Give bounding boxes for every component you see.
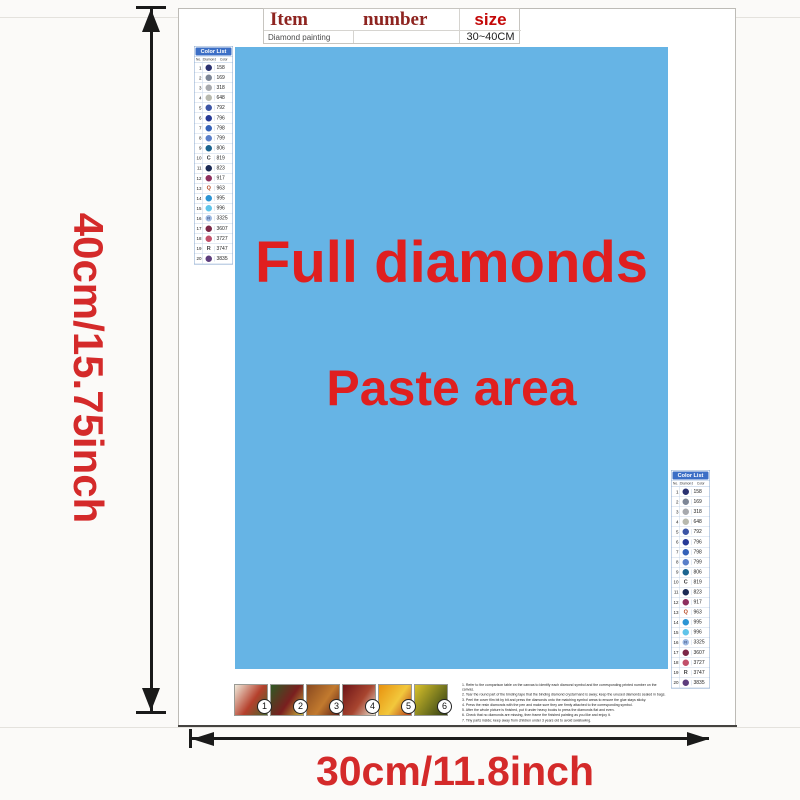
paste-area-title-line2: Paste area (235, 359, 668, 417)
diamond-symbol-dot (683, 659, 690, 666)
diamond-symbol-cell (203, 103, 215, 113)
diamond-symbol-cell (680, 497, 692, 507)
diamond-symbol-cell: C (680, 577, 692, 587)
dmc-color-code: 963 (692, 610, 710, 616)
diamond-symbol-cell (680, 567, 692, 577)
color-list-row-number: 9 (195, 146, 203, 151)
arrow-line (150, 9, 153, 711)
color-list-row: 7798 (672, 547, 710, 557)
color-list-row: 16R3325 (672, 638, 710, 648)
dmc-color-code: 796 (692, 539, 710, 545)
diamond-symbol-cell (203, 113, 215, 123)
diamond-symbol-cell (203, 234, 215, 244)
color-list-row: 15996 (672, 628, 710, 638)
color-list-row-number: 7 (672, 550, 680, 555)
col-diamond: Diamond (203, 58, 215, 62)
dmc-color-code: 3835 (692, 680, 710, 686)
diamond-symbol-cell (203, 83, 215, 93)
diamond-symbol-dot (206, 115, 213, 122)
color-list-row-number: 1 (672, 489, 680, 494)
color-list-title: Color List (196, 48, 232, 56)
diamond-symbol-dot (683, 589, 690, 596)
color-list-row-number: 15 (672, 630, 680, 635)
dmc-color-code: 3727 (692, 660, 710, 666)
color-list-row: 183727 (672, 658, 710, 668)
color-list-row-number: 11 (195, 166, 203, 171)
dmc-color-code: 3747 (692, 670, 710, 676)
dmc-color-code: 318 (692, 509, 710, 515)
paper-bottom-edge (178, 725, 737, 727)
diamond-symbol-cell: Q (203, 184, 215, 194)
dmc-color-code: 3727 (215, 236, 233, 242)
color-list-row: 11823 (672, 587, 710, 597)
color-list-left: Color List No. Diamond Color 11582169331… (194, 46, 234, 483)
diamond-symbol-cell (203, 93, 215, 103)
color-list-row-number: 14 (195, 196, 203, 201)
table-header-size: size (459, 9, 521, 30)
diamond-symbol-cell (203, 204, 215, 214)
step-thumbnails: 123456 (234, 684, 448, 716)
color-list-row-number: 10 (195, 156, 203, 161)
instruction-line: 5. After the whole picture is finished, … (462, 708, 668, 713)
color-list-row-number: 11 (672, 590, 680, 595)
color-list-row-number: 5 (195, 105, 203, 110)
diamond-symbol-cell (680, 547, 692, 557)
dmc-color-code: 806 (692, 569, 710, 575)
col-no: No. (195, 58, 203, 62)
dmc-color-code: 798 (692, 549, 710, 555)
diamond-symbol-cell (203, 254, 215, 264)
color-list-row-number: 13 (195, 186, 203, 191)
color-list-row: 16R3325 (195, 214, 233, 224)
dmc-color-code: 823 (692, 589, 710, 595)
table-header-number: number (353, 9, 459, 30)
color-list-row-number: 15 (195, 206, 203, 211)
diamond-symbol-dot (206, 75, 213, 82)
color-list-row: 19R3747 (672, 668, 710, 678)
diamond-symbol-cell (680, 678, 692, 688)
dmc-color-code: 648 (692, 519, 710, 525)
diamond-symbol-cell (680, 648, 692, 658)
dmc-color-code: 3607 (215, 226, 233, 232)
arrow-line (192, 737, 709, 740)
color-list-row-number: 17 (672, 650, 680, 655)
arrowhead-left-icon (192, 732, 214, 746)
dmc-color-code: 158 (215, 65, 233, 71)
color-list-row-number: 2 (672, 499, 680, 504)
color-list-row: 1158 (672, 487, 710, 497)
step-number-badge: 3 (329, 699, 344, 714)
color-list-row: 6796 (672, 537, 710, 547)
color-list-row: 7798 (195, 123, 233, 133)
color-list-row: 3318 (195, 83, 233, 93)
color-list-row: 3318 (672, 507, 710, 517)
diamond-symbol-dot (683, 619, 690, 626)
instruction-line: 4. Press the resin diamonds with the pen… (462, 703, 668, 708)
dmc-color-code: 158 (692, 489, 710, 495)
color-list-row: 1158 (195, 63, 233, 73)
color-list-title: Color List (673, 472, 709, 480)
diamond-symbol-cell: R (203, 214, 215, 224)
color-list-right: Color List No. Diamond Color 11582169331… (671, 470, 711, 800)
dmc-color-code: 799 (692, 559, 710, 565)
diamond-symbol-letter: Q (207, 186, 211, 192)
col-color: Color (215, 58, 233, 62)
color-list-row-number: 20 (672, 680, 680, 685)
dmc-color-code: 917 (692, 600, 710, 606)
col-diamond: Diamond (680, 482, 692, 486)
color-list-row-number: 4 (195, 95, 203, 100)
dmc-color-code: 648 (215, 95, 233, 101)
color-list-row: 10C819 (672, 577, 710, 587)
color-list-row: 15996 (195, 204, 233, 214)
diamond-symbol-cell: R (680, 638, 692, 648)
product-diagram-page: Item number size Diamond painting 30~40C… (0, 0, 800, 800)
color-list-row-number: 19 (672, 670, 680, 675)
color-list-row: 203835 (672, 678, 710, 688)
diamond-symbol-cell (203, 163, 215, 173)
diamond-symbol-cell: R (680, 668, 692, 678)
step-thumbnail-image: 6 (414, 684, 448, 716)
diamond-symbol-dot (206, 95, 213, 102)
diamond-symbol-cell (680, 507, 692, 517)
dmc-color-code: 792 (215, 105, 233, 111)
diamond-symbol-cell (680, 658, 692, 668)
diamond-symbol-letter: Q (684, 610, 688, 616)
color-list-row-number: 5 (672, 529, 680, 534)
diamond-symbol-letter: R (207, 246, 211, 252)
color-list-row: 13Q963 (195, 184, 233, 194)
diamond-symbol-cell: R (203, 244, 215, 254)
paste-area: Full diamonds Paste area (235, 47, 668, 669)
instruction-line: 2. Tear the round part of the binding ta… (462, 693, 668, 698)
step-thumbnail-image: 1 (234, 684, 268, 716)
color-list-table: Color List No. Diamond Color 11582169331… (671, 470, 710, 688)
color-list-row-number: 18 (672, 660, 680, 665)
dmc-color-code: 798 (215, 125, 233, 131)
step-thumbnail-image: 5 (378, 684, 412, 716)
diamond-symbol-dot (206, 105, 213, 112)
color-list-row: 183727 (195, 234, 233, 244)
arrowhead-up-icon (142, 9, 160, 32)
diamond-symbol-cell (680, 618, 692, 628)
color-list-row: 9806 (195, 143, 233, 153)
diamond-symbol-dot (206, 255, 213, 262)
diamond-symbol-dot (206, 235, 213, 242)
dmc-color-code: 169 (692, 499, 710, 505)
dmc-color-code: 3325 (215, 216, 233, 222)
arrowhead-right-icon (687, 732, 709, 746)
dmc-color-code: 318 (215, 85, 233, 91)
diamond-symbol-dot (683, 539, 690, 546)
dmc-color-code: 796 (215, 115, 233, 121)
color-list-row-number: 14 (672, 620, 680, 625)
step-number-badge: 5 (401, 699, 416, 714)
dmc-color-code: 996 (215, 206, 233, 212)
dmc-color-code: 819 (692, 579, 710, 585)
color-list-row: 19R3747 (195, 244, 233, 254)
item-size-table: Item number size Diamond painting 30~40C… (263, 8, 520, 44)
dmc-color-code: 917 (215, 176, 233, 182)
col-color: Color (692, 482, 710, 486)
table-cell-number (353, 30, 459, 43)
color-list-row: 2169 (672, 497, 710, 507)
diamond-symbol-dot (683, 509, 690, 516)
color-list-row: 14995 (195, 194, 233, 204)
dmc-color-code: 995 (215, 196, 233, 202)
diamond-symbol-letter: R (684, 670, 688, 676)
diamond-symbol-cell (203, 73, 215, 83)
diamond-symbol-letter: C (684, 579, 688, 585)
dmc-color-code: 995 (692, 620, 710, 626)
color-list-row-number: 3 (195, 85, 203, 90)
color-list-row-number: 9 (672, 570, 680, 575)
color-list-row: 173607 (195, 224, 233, 234)
color-list-row: 8799 (672, 557, 710, 567)
diamond-symbol-dot (206, 125, 213, 132)
color-list-row: 6796 (195, 113, 233, 123)
diamond-symbol-dot (206, 85, 213, 92)
color-list-row-number: 1 (195, 65, 203, 70)
diamond-symbol-dot (206, 225, 213, 232)
dmc-color-code: 963 (215, 186, 233, 192)
paste-area-title-line1: Full diamonds (235, 229, 668, 296)
instruction-line: 1. Refer to the comparison table on the … (462, 683, 668, 692)
diamond-symbol-dot: R (206, 215, 213, 222)
color-list-row-number: 16 (195, 216, 203, 221)
diamond-symbol-cell: Q (680, 608, 692, 618)
height-dimension-label: 40cm/15.75inch (64, 213, 112, 524)
step-thumbnail-image: 2 (270, 684, 304, 716)
color-list-row: 11823 (195, 163, 233, 173)
dmc-color-code: 823 (215, 165, 233, 171)
diamond-symbol-dot (206, 165, 213, 172)
color-list-rows: 11582169331846485792679677988799980610C8… (195, 63, 233, 264)
color-list-row-number: 10 (672, 580, 680, 585)
diamond-symbol-cell (203, 194, 215, 204)
diamond-symbol-cell (203, 133, 215, 143)
color-list-row: 5792 (195, 103, 233, 113)
dmc-color-code: 996 (692, 630, 710, 636)
color-list-row: 13Q963 (672, 608, 710, 618)
color-list-row-number: 2 (195, 75, 203, 80)
diamond-symbol-dot: R (683, 639, 690, 646)
arrow-cap-bottom (136, 711, 166, 714)
instruction-line: 6. Check that no diamonds are missing, t… (462, 713, 668, 718)
color-list-row-number: 6 (672, 540, 680, 545)
col-no: No. (672, 482, 680, 486)
dmc-color-code: 169 (215, 75, 233, 81)
diamond-symbol-cell (680, 527, 692, 537)
step-number-badge: 4 (365, 699, 380, 714)
dmc-color-code: 806 (215, 145, 233, 151)
color-list-row-number: 17 (195, 226, 203, 231)
diamond-symbol-dot (683, 549, 690, 556)
table-header-item: Item (264, 9, 353, 30)
table-cell-size: 30~40CM (459, 30, 521, 43)
color-list-row-number: 20 (195, 256, 203, 261)
diamond-symbol-cell (680, 598, 692, 608)
diamond-symbol-cell (680, 537, 692, 547)
color-list-row-number: 18 (195, 236, 203, 241)
color-list-rows: 11582169331846485792679677988799980610C8… (672, 487, 710, 688)
color-list-row-number: 12 (195, 176, 203, 181)
color-list-row-number: 4 (672, 519, 680, 524)
diamond-symbol-cell (203, 174, 215, 184)
diamond-symbol-dot (206, 145, 213, 152)
diamond-symbol-dot (683, 679, 690, 686)
step-thumbnail-image: 4 (342, 684, 376, 716)
color-list-row: 12917 (195, 174, 233, 184)
diamond-symbol-cell (680, 517, 692, 527)
color-list-row: 12917 (672, 598, 710, 608)
diamond-symbol-dot (206, 195, 213, 202)
diamond-symbol-dot (683, 629, 690, 636)
color-list-row: 203835 (195, 254, 233, 264)
diamond-symbol-dot (683, 499, 690, 506)
color-list-row: 10C819 (195, 153, 233, 163)
color-list-row-number: 3 (672, 509, 680, 514)
color-list-row: 9806 (672, 567, 710, 577)
table-cell-item: Diamond painting (264, 30, 353, 43)
diamond-symbol-dot (683, 489, 690, 496)
color-list-row-number: 6 (195, 116, 203, 121)
diamond-symbol-cell (680, 628, 692, 638)
diamond-symbol-cell: C (203, 153, 215, 163)
diamond-symbol-dot (206, 135, 213, 142)
step-number-badge: 2 (293, 699, 308, 714)
height-dimension-arrow (136, 6, 166, 714)
instruction-text: 1. Refer to the comparison table on the … (462, 683, 668, 723)
dmc-color-code: 799 (215, 135, 233, 141)
diamond-symbol-dot (206, 65, 213, 72)
step-number-badge: 1 (257, 699, 272, 714)
diamond-symbol-dot (206, 205, 213, 212)
color-list-row: 4648 (672, 517, 710, 527)
step-number-badge: 6 (437, 699, 452, 714)
color-list-table: Color List No. Diamond Color 11582169331… (194, 46, 233, 264)
color-list-row: 5792 (672, 527, 710, 537)
diamond-symbol-letter: C (207, 155, 211, 161)
width-dimension-label: 30cm/11.8inch (285, 748, 625, 795)
diamond-symbol-dot (683, 569, 690, 576)
dmc-color-code: 819 (215, 155, 233, 161)
instruction-line: 3. Peel the cover film bit by bit and pr… (462, 698, 668, 703)
diamond-symbol-cell (203, 143, 215, 153)
width-dimension-arrow (189, 729, 712, 748)
color-list-row-number: 16 (672, 640, 680, 645)
color-list-row: 4648 (195, 93, 233, 103)
color-list-row: 8799 (195, 133, 233, 143)
color-list-row: 14995 (672, 618, 710, 628)
diamond-symbol-cell (203, 224, 215, 234)
diamond-symbol-cell (680, 587, 692, 597)
diamond-symbol-dot (683, 519, 690, 526)
dmc-color-code: 3607 (692, 650, 710, 656)
instruction-line: 7. Tiny parts inside; keep away from chi… (462, 718, 668, 723)
color-list-row-number: 7 (195, 126, 203, 131)
dmc-color-code: 792 (692, 529, 710, 535)
diamond-symbol-cell (680, 557, 692, 567)
diamond-symbol-cell (203, 63, 215, 73)
diamond-symbol-dot (206, 175, 213, 182)
arrowhead-down-icon (142, 688, 160, 711)
diamond-symbol-dot (683, 559, 690, 566)
diamond-symbol-dot (683, 649, 690, 656)
color-list-row-number: 8 (195, 136, 203, 141)
color-list-row-number: 13 (672, 610, 680, 615)
dmc-color-code: 3835 (215, 256, 233, 262)
color-list-row-number: 12 (672, 600, 680, 605)
diamond-symbol-dot (683, 599, 690, 606)
step-thumbnail-image: 3 (306, 684, 340, 716)
diamond-symbol-cell (680, 487, 692, 497)
color-list-row-number: 8 (672, 560, 680, 565)
dmc-color-code: 3747 (215, 246, 233, 252)
color-list-row: 173607 (672, 648, 710, 658)
diamond-symbol-dot (683, 529, 690, 536)
diamond-symbol-cell (203, 123, 215, 133)
dmc-color-code: 3325 (692, 640, 710, 646)
color-list-row: 2169 (195, 73, 233, 83)
color-list-row-number: 19 (195, 246, 203, 251)
